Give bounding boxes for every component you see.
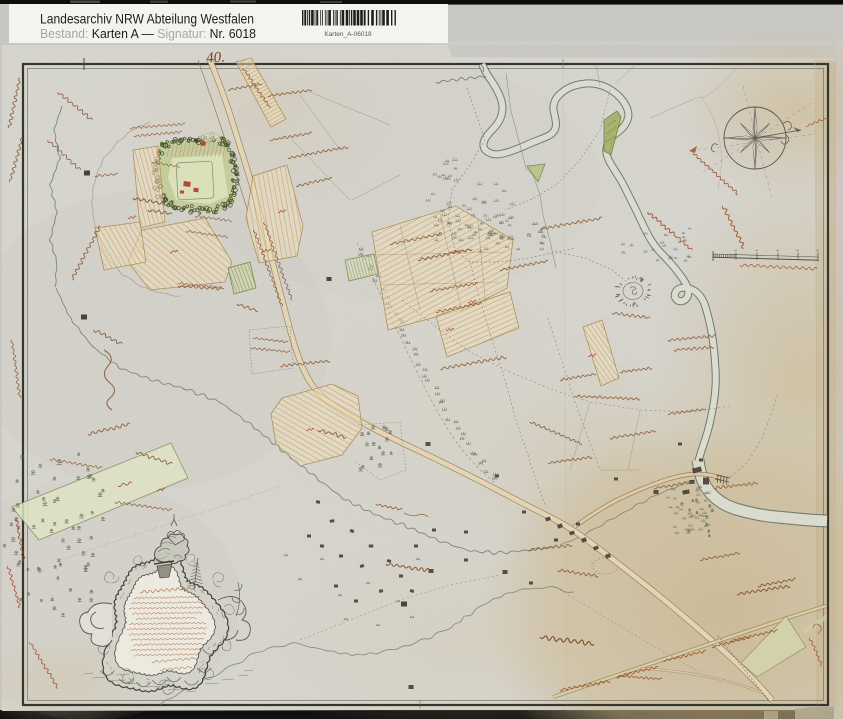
svg-text:Bestand: Karten A — Signatur:: Bestand: Karten A — Signatur: Nr. 6018 (40, 26, 256, 41)
svg-text:Landesarchiv NRW Abteilung Wes: Landesarchiv NRW Abteilung Westfalen (40, 12, 254, 27)
svg-text:40.: 40. (206, 49, 226, 66)
svg-text:Karten_A-06018: Karten_A-06018 (324, 31, 372, 38)
